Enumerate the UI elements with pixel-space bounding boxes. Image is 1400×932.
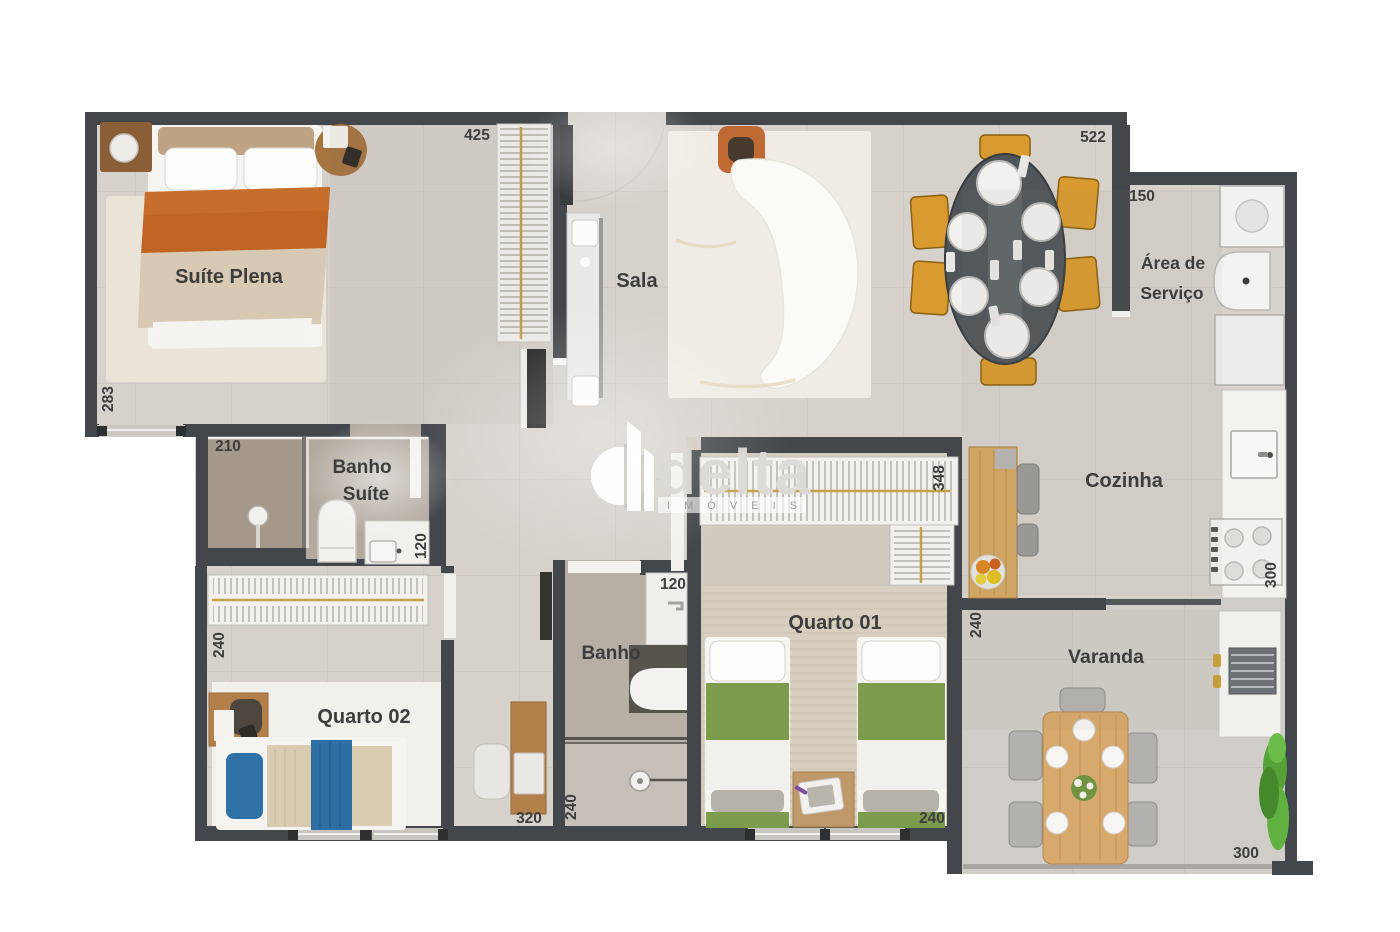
svg-text:Banho: Banho — [581, 643, 640, 664]
svg-text:150: 150 — [1129, 188, 1155, 205]
svg-text:320: 320 — [516, 810, 542, 827]
svg-text:240: 240 — [919, 810, 945, 827]
svg-text:Sala: Sala — [616, 270, 658, 292]
svg-text:Quarto 01: Quarto 01 — [788, 612, 881, 634]
svg-text:Banho: Banho — [332, 457, 391, 478]
svg-text:240: 240 — [211, 632, 228, 658]
svg-text:120: 120 — [660, 576, 686, 593]
svg-text:120: 120 — [413, 533, 430, 559]
svg-text:Serviço: Serviço — [1140, 283, 1203, 303]
svg-text:522: 522 — [1080, 129, 1106, 146]
svg-text:240: 240 — [968, 612, 985, 638]
svg-text:Cozinha: Cozinha — [1085, 470, 1164, 492]
svg-text:Área de: Área de — [1141, 252, 1205, 273]
svg-text:240: 240 — [563, 794, 580, 820]
svg-text:425: 425 — [464, 127, 490, 144]
svg-text:300: 300 — [1263, 562, 1280, 588]
svg-text:348: 348 — [931, 465, 948, 491]
svg-text:283: 283 — [100, 386, 117, 412]
svg-text:Suíte Plena: Suíte Plena — [175, 266, 284, 288]
svg-text:300: 300 — [1233, 845, 1259, 862]
svg-text:Quarto 02: Quarto 02 — [317, 706, 410, 728]
svg-text:210: 210 — [215, 438, 241, 455]
svg-text:Suíte: Suíte — [343, 484, 389, 505]
svg-text:Varanda: Varanda — [1068, 646, 1144, 668]
